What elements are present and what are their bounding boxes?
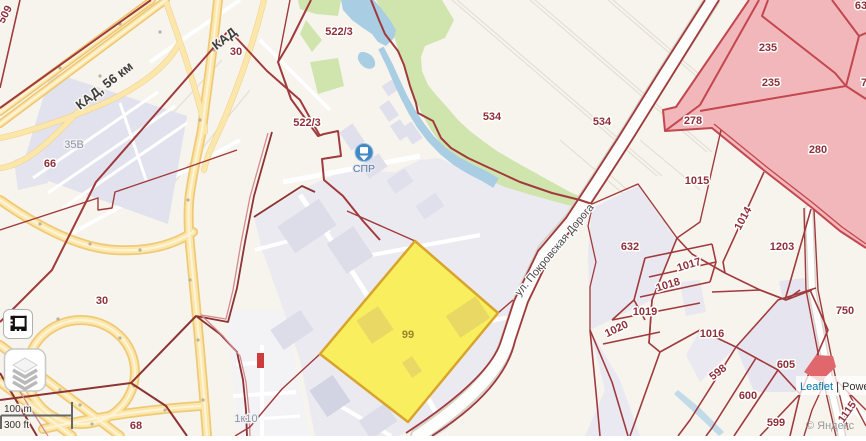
svg-text:100 m: 100 m: [4, 404, 32, 415]
svg-text:Leaflet | Powe: Leaflet | Powe: [800, 381, 866, 393]
svg-text:99: 99: [402, 329, 414, 341]
svg-text:7: 7: [861, 77, 866, 89]
svg-text:1016: 1016: [700, 328, 724, 340]
svg-text:522/3: 522/3: [325, 26, 353, 38]
svg-text:© Яндекс: © Яндекс: [806, 420, 855, 432]
svg-text:1019: 1019: [633, 306, 657, 318]
svg-text:534: 534: [483, 111, 502, 123]
svg-text:599: 599: [767, 417, 785, 429]
svg-text:605: 605: [777, 359, 795, 371]
svg-text:СПР: СПР: [353, 163, 375, 175]
svg-text:35В: 35В: [64, 139, 84, 151]
svg-text:1015: 1015: [685, 175, 709, 187]
svg-text:534: 534: [593, 116, 612, 128]
svg-text:66: 66: [44, 158, 56, 170]
svg-text:63: 63: [855, 0, 866, 12]
svg-text:1203: 1203: [770, 241, 794, 253]
svg-text:235: 235: [759, 42, 777, 54]
svg-text:30: 30: [96, 295, 108, 307]
svg-text:632: 632: [621, 241, 639, 253]
svg-text:600: 600: [739, 390, 757, 402]
svg-text:30: 30: [230, 46, 242, 58]
svg-text:280: 280: [809, 144, 827, 156]
svg-text:68: 68: [130, 420, 142, 432]
svg-text:300 ft: 300 ft: [4, 420, 29, 431]
svg-text:522/3: 522/3: [293, 117, 321, 129]
svg-text:1к10: 1к10: [234, 413, 257, 425]
svg-text:750: 750: [836, 305, 854, 317]
svg-text:278: 278: [684, 115, 702, 127]
svg-text:235: 235: [762, 77, 780, 89]
